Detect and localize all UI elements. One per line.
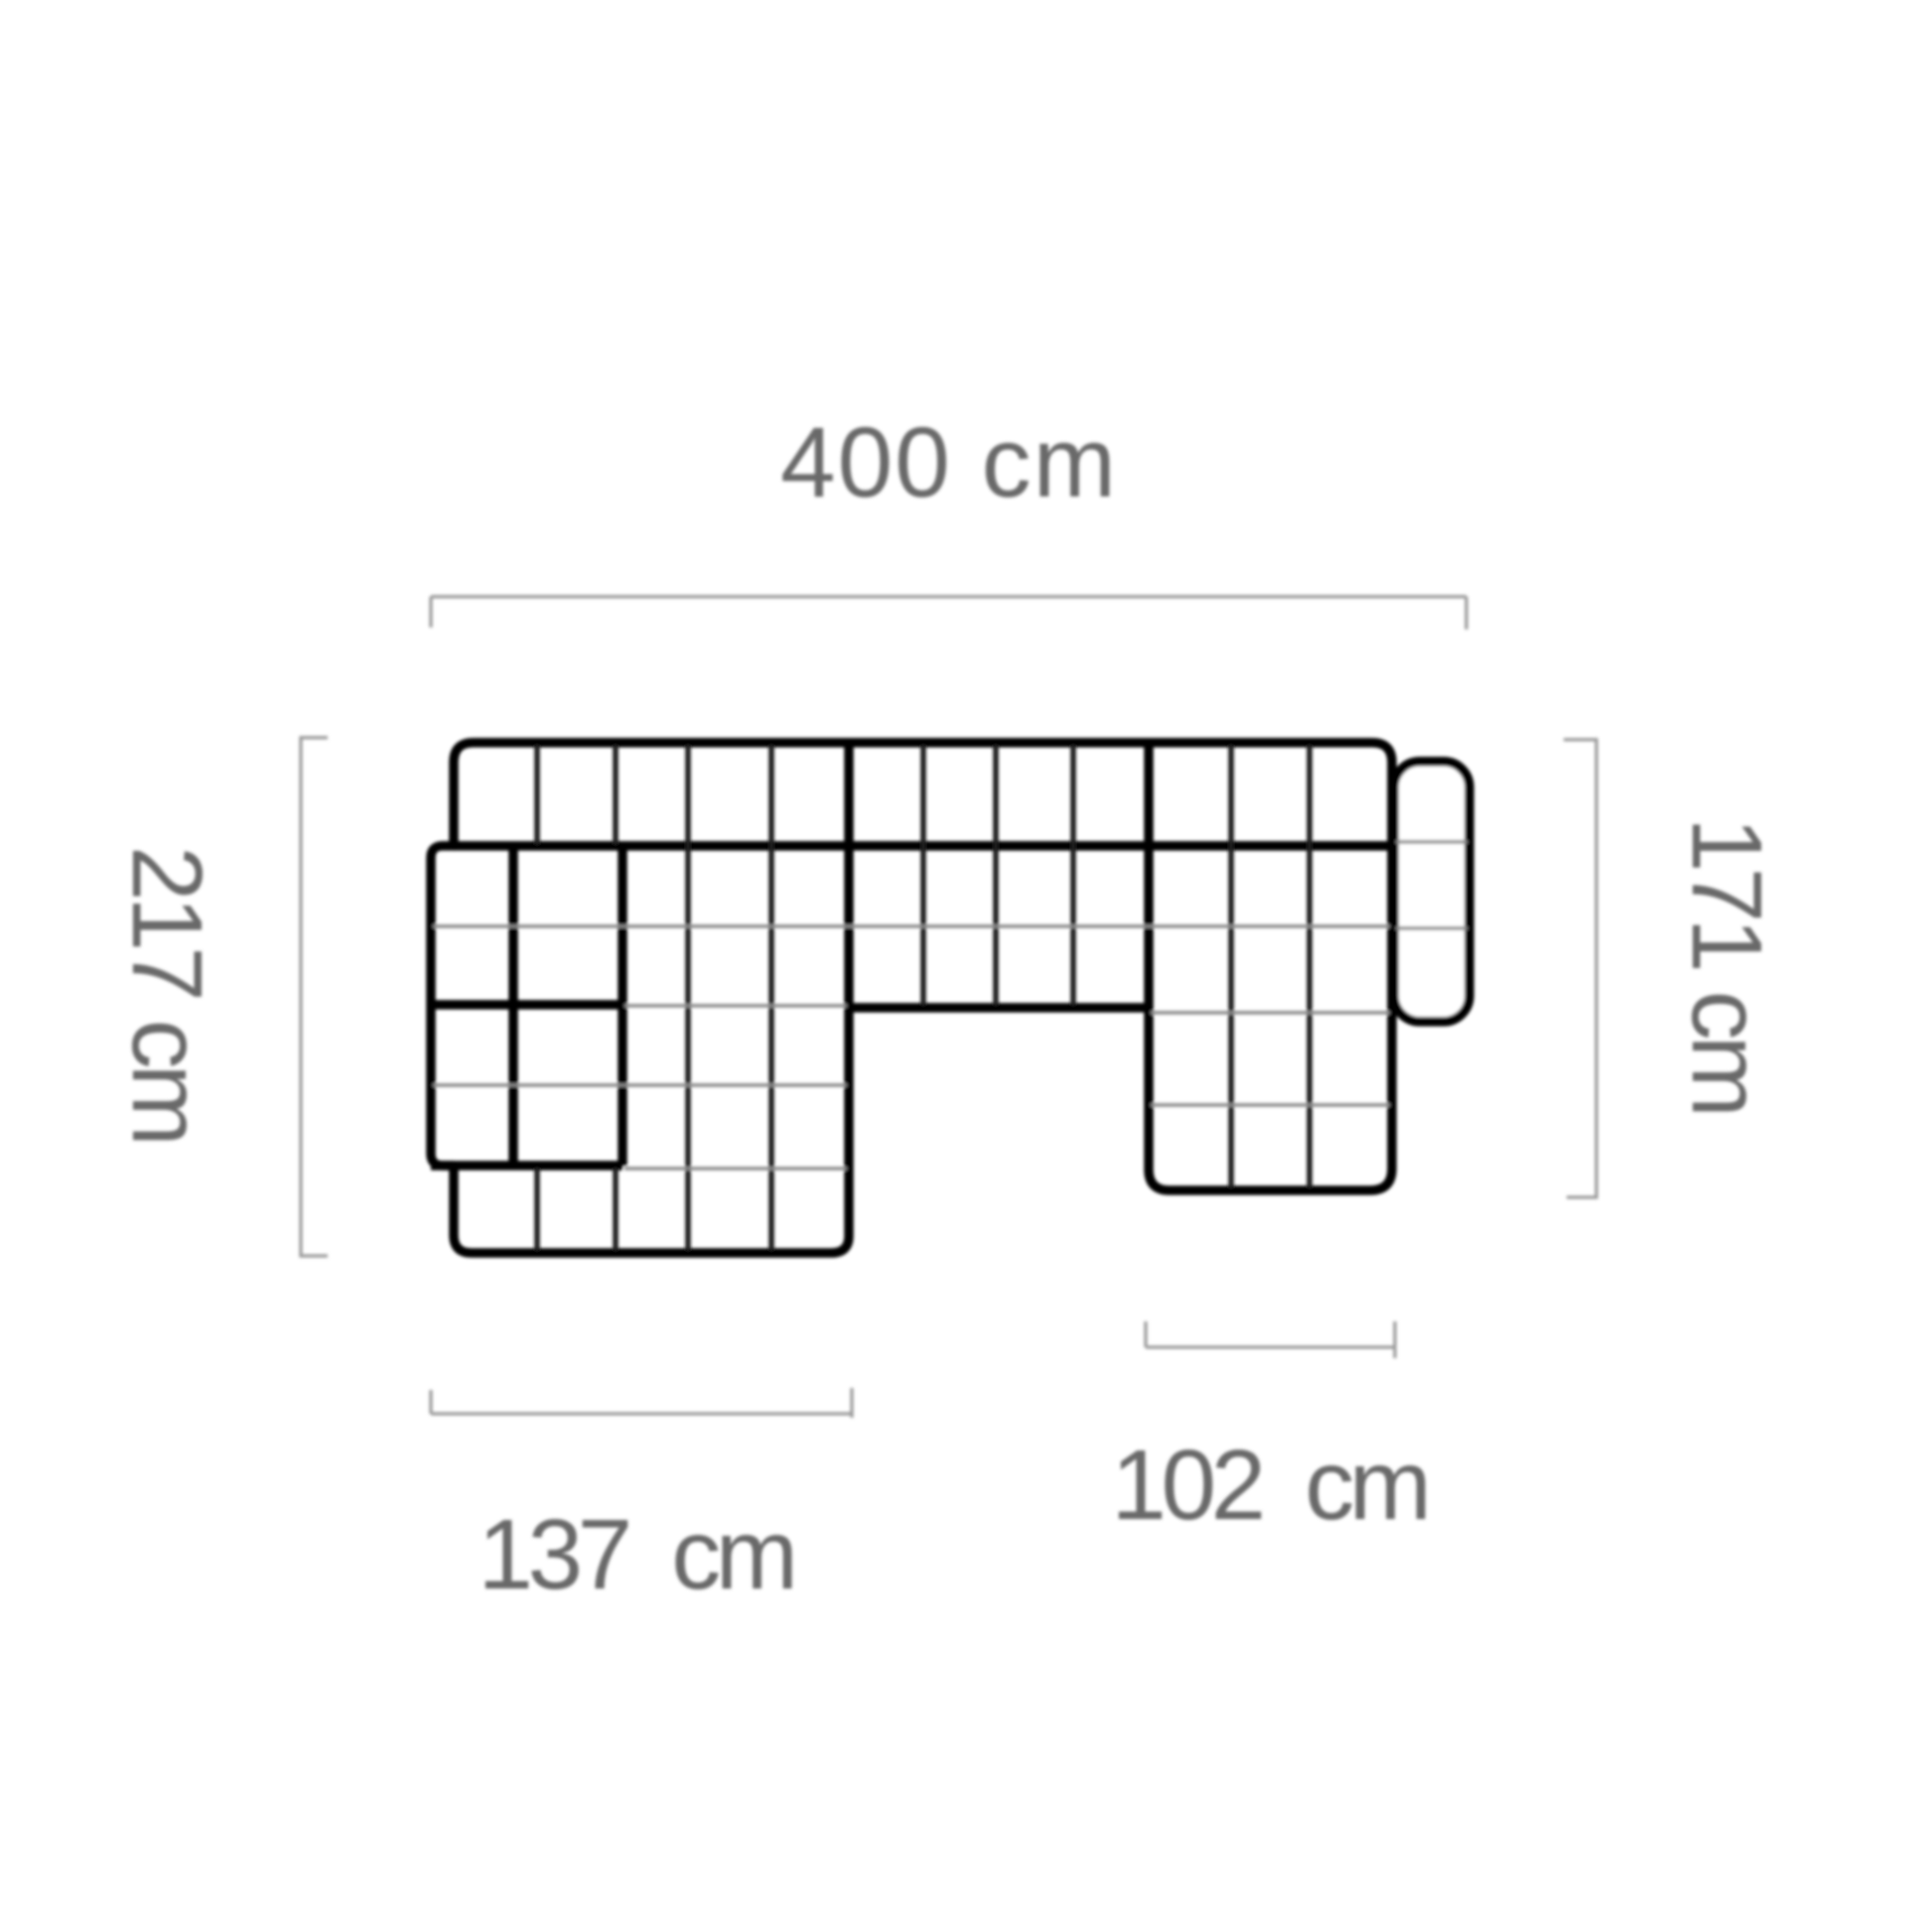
- svg-text:102 cm: 102 cm: [1111, 1430, 1426, 1541]
- svg-text:217 cm: 217 cm: [111, 846, 222, 1142]
- svg-text:171 cm: 171 cm: [1671, 817, 1782, 1113]
- svg-text:137 cm: 137 cm: [478, 1499, 792, 1610]
- svg-text:400 cm: 400 cm: [780, 407, 1118, 518]
